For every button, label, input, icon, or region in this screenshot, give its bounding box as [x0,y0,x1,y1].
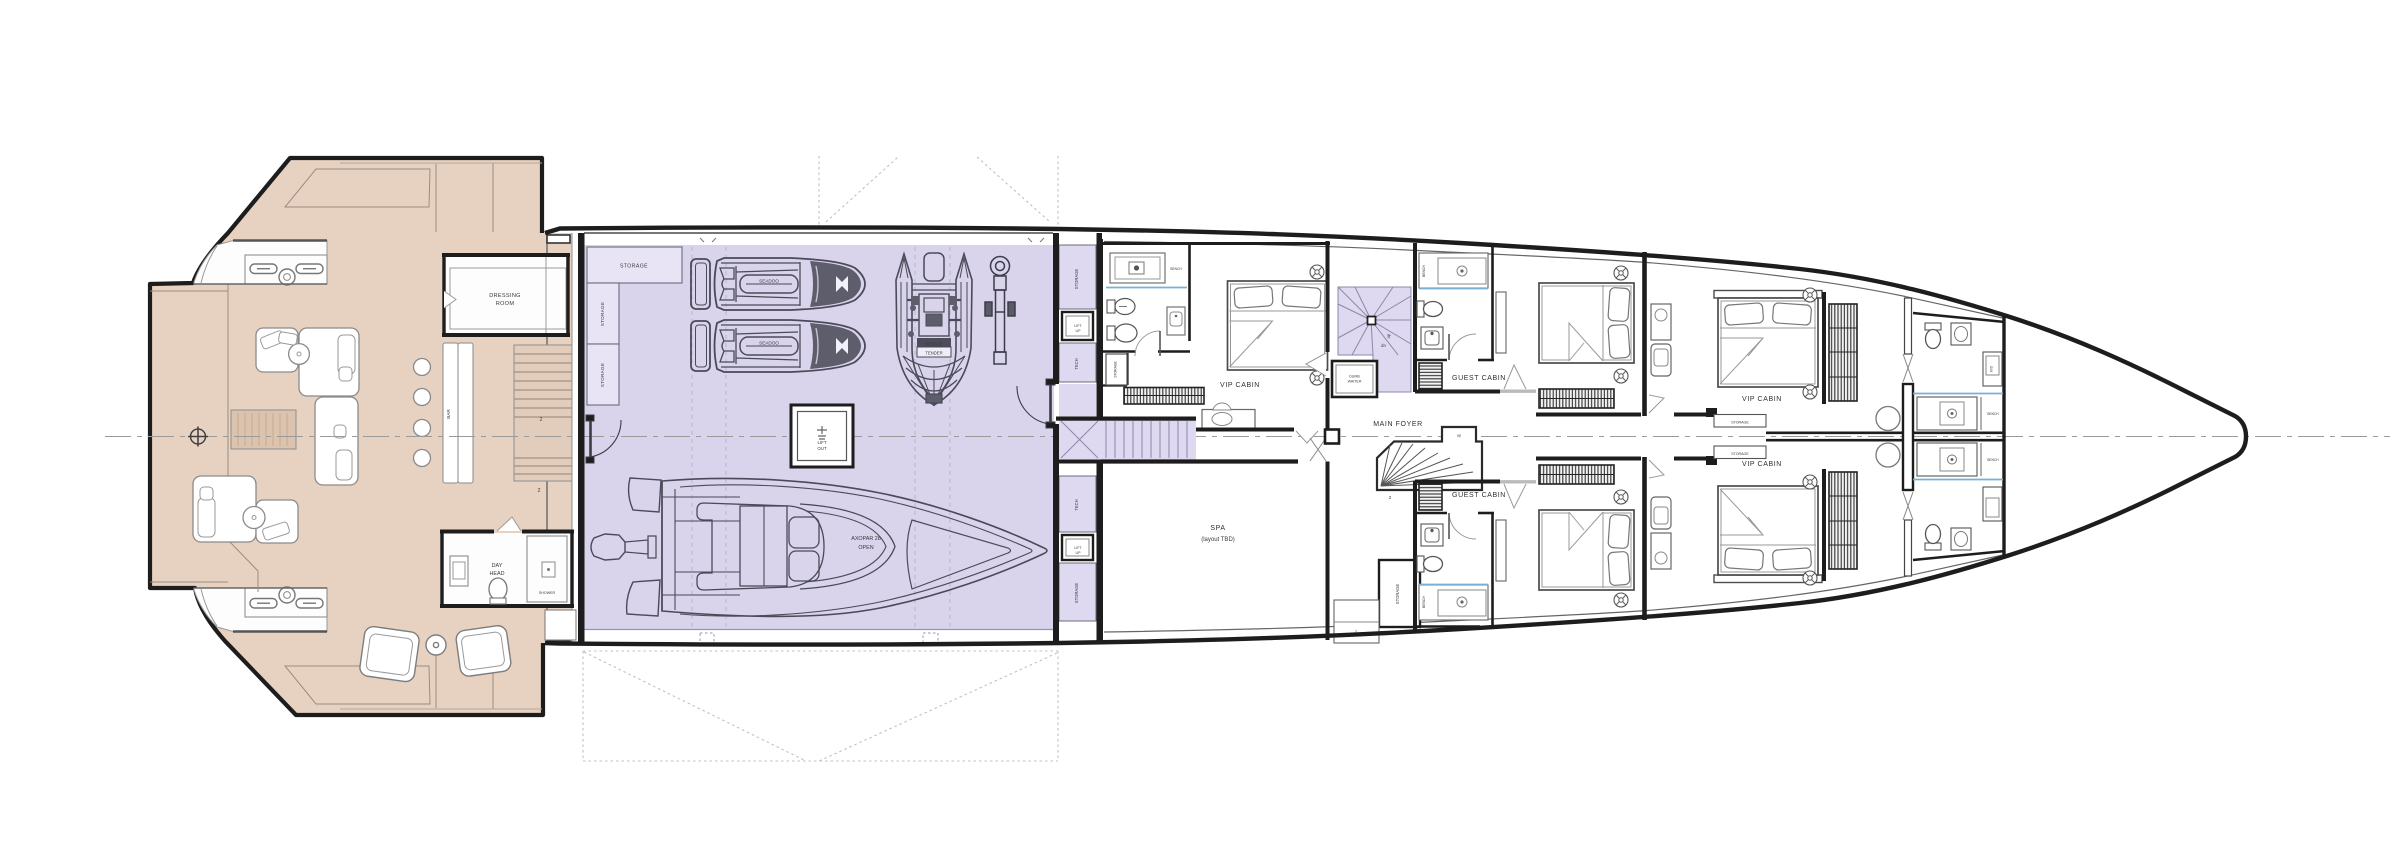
svg-text:dn: dn [1381,343,1386,348]
svg-text:TENDER: TENDER [925,351,942,356]
svg-text:STORAGE: STORAGE [1114,361,1118,378]
svg-text:2: 2 [1389,495,1392,500]
svg-text:WAITER: WAITER [1348,380,1362,384]
svg-text:VIP CABIN: VIP CABIN [1742,396,1782,403]
svg-text:DUMB: DUMB [1349,375,1360,379]
svg-text:STORAGE: STORAGE [1074,583,1079,604]
svg-text:2: 2 [540,417,543,423]
svg-text:SHOWER: SHOWER [539,591,556,595]
svg-text:DAY: DAY [492,563,503,569]
svg-text:STORAGE: STORAGE [1731,421,1749,425]
svg-text:W/D: W/D [1990,365,1994,372]
svg-text:2: 2 [538,488,541,494]
svg-text:VIP CABIN: VIP CABIN [1220,382,1260,389]
svg-text:up: up [1457,433,1462,438]
svg-text:up: up [1386,333,1391,338]
svg-text:BENCH: BENCH [1987,412,1999,416]
svg-text:OUT: OUT [817,446,827,451]
svg-text:OPEN: OPEN [858,545,873,551]
svg-text:LIFT: LIFT [1074,324,1082,328]
svg-text:UP: UP [1076,329,1082,333]
svg-text:BAR: BAR [446,409,451,419]
svg-text:STORAGE: STORAGE [600,363,605,387]
svg-text:STORAGE: STORAGE [1074,269,1079,290]
svg-text:STORAGE: STORAGE [1395,584,1400,605]
svg-text:SPA: SPA [1210,525,1225,532]
svg-text:TECH: TECH [1074,499,1079,510]
svg-text:STORAGE: STORAGE [1731,452,1749,456]
svg-text:AXOPAR 28: AXOPAR 28 [851,536,881,542]
svg-text:STORAGE: STORAGE [600,302,605,326]
svg-text:LIFT: LIFT [1074,546,1082,550]
svg-text:BENCH: BENCH [1422,265,1426,277]
svg-text:MAIN FOYER: MAIN FOYER [1373,421,1423,428]
svg-text:VIP CABIN: VIP CABIN [1742,461,1782,468]
svg-text:BENCH: BENCH [1170,267,1182,271]
svg-text:ROOM: ROOM [496,301,515,307]
svg-text:UP: UP [1076,551,1082,555]
svg-text:RESCUE: RESCUE [925,342,943,347]
svg-text:HEAD: HEAD [490,571,505,577]
svg-text:GUEST CABIN: GUEST CABIN [1452,375,1506,382]
svg-text:DRESSING: DRESSING [489,293,521,299]
svg-text:(layout TBD): (layout TBD) [1201,537,1235,543]
svg-text:GUEST CABIN: GUEST CABIN [1452,492,1506,499]
svg-text:TECH: TECH [1074,358,1079,369]
svg-text:BENCH: BENCH [1422,596,1426,608]
svg-text:LIFT: LIFT [817,440,826,445]
svg-text:SEADOO: SEADOO [759,279,779,284]
svg-text:BENCH: BENCH [1987,458,1999,462]
svg-text:STORAGE: STORAGE [620,264,648,270]
